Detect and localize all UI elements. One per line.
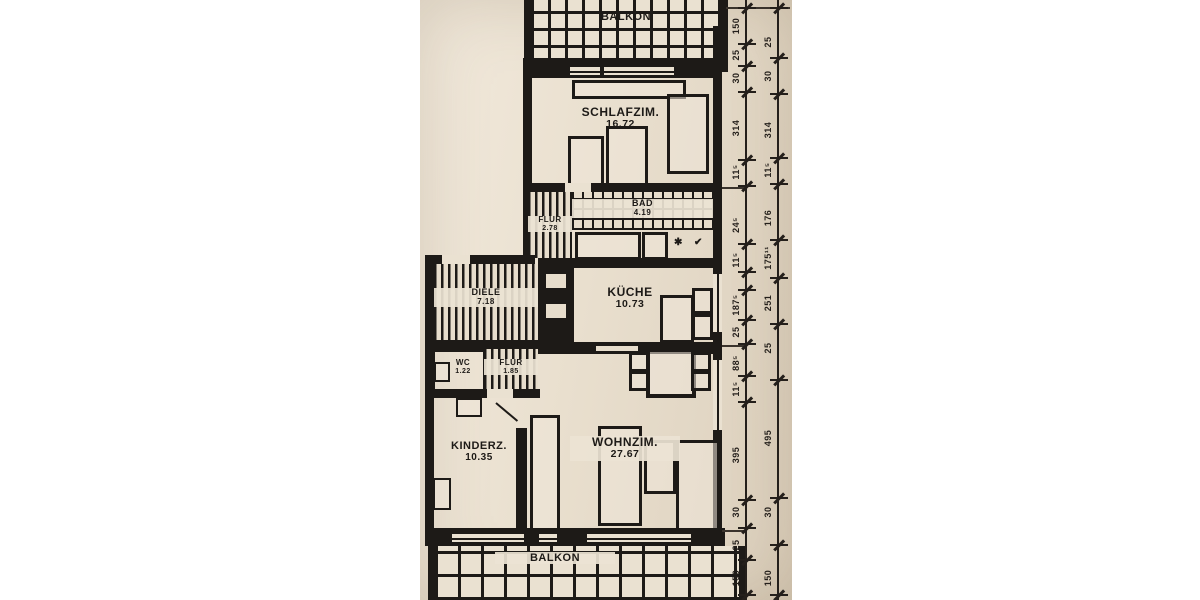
window-kinderzimmer <box>450 534 526 542</box>
door-opening-schlafzimmer <box>565 183 591 192</box>
diele: DIELE 7.18 <box>434 264 538 340</box>
dimension-value: 30 <box>731 72 741 83</box>
wohnzimmer-wardrobe <box>530 415 560 534</box>
wall-entry <box>425 255 535 264</box>
dimension-value: 24⁵ <box>731 217 741 233</box>
dimension-chain-inner: 150253031411⁵24⁵11⁵187⁵2588⁵11⁵395302515… <box>745 0 747 600</box>
kueche-appliance-2 <box>692 314 713 340</box>
dimension-value: 395 <box>731 447 741 464</box>
window-schlafzimmer-left <box>568 67 602 75</box>
dimension-value: 30 <box>763 506 773 517</box>
dimension-value: 11⁵ <box>731 164 741 179</box>
dimension-value: 251 <box>763 295 773 312</box>
door-swing-wohnzimmer <box>495 402 518 422</box>
dimension-value: 25 <box>731 326 741 337</box>
balcony-door-bottom <box>537 534 559 542</box>
flur-upper: FLUR 2.78 <box>528 192 572 258</box>
kinderzimmer-closet <box>456 398 482 417</box>
room-label-bad: BAD 4.19 <box>572 199 713 218</box>
bad-vanity <box>575 232 641 260</box>
shaft-slot-1 <box>546 274 566 288</box>
wall-top <box>523 58 722 78</box>
bad-room: BAD 4.19 <box>572 192 713 230</box>
floorplan-photo: BALKON SCHLAFZIM. 16.72 FLUR <box>420 0 792 600</box>
room-label-diele: DIELE 7.18 <box>434 288 538 307</box>
dimension-value: 25 <box>731 539 741 550</box>
chair-3 <box>691 352 711 372</box>
room-label-kinderzimmer: KINDERZ. 10.35 <box>434 440 524 463</box>
dimension-value: 150 <box>763 570 773 587</box>
screenshot-root: BALKON SCHLAFZIM. 16.72 FLUR <box>0 0 1200 600</box>
dimension-value: 176 <box>763 210 773 227</box>
schlafzimmer-wardrobe <box>667 94 709 174</box>
window-wohnzimmer <box>713 358 722 432</box>
entry-door-opening <box>442 255 470 264</box>
wall-kinderzimmer-wohnzimmer <box>516 428 527 528</box>
room-label-flur-lower: FLUR 1.85 <box>484 359 538 375</box>
window-kueche <box>713 272 722 334</box>
dimension-value: 314 <box>731 120 741 137</box>
bad-sink-box <box>642 232 668 260</box>
dining-table <box>646 348 696 398</box>
pass-through-slot <box>596 346 638 351</box>
dimension-value: 150 <box>731 570 741 587</box>
room-label-flur-upper: FLUR 2.78 <box>528 216 572 232</box>
dimension-value: 187⁵ <box>731 294 741 315</box>
shaft-slot-2 <box>546 304 566 318</box>
schlafzimmer-bed-2 <box>606 126 648 189</box>
shaft-closet <box>538 258 574 348</box>
dimension-value: 30 <box>731 506 741 517</box>
kueche-appliance-1 <box>692 288 713 314</box>
dimension-value: 11⁵ <box>731 381 741 396</box>
chair-2 <box>629 371 649 391</box>
wall-schlafzimmer-bad <box>523 183 722 192</box>
balcony-bottom-label: BALKON <box>495 552 615 564</box>
dimension-value: 30 <box>763 70 773 81</box>
bad-fixture-star-icon: ✱ <box>674 237 682 248</box>
chair-1 <box>629 352 649 372</box>
kueche-counter <box>660 295 694 343</box>
window-wohnzimmer-bottom <box>585 534 693 542</box>
wall-diele-wc <box>425 340 540 349</box>
wohnzimmer-cabinet-2 <box>676 440 720 534</box>
dimension-value: 11⁵ <box>763 162 773 177</box>
dimension-value: 11⁵ <box>731 252 741 267</box>
window-schlafzimmer-right <box>602 67 676 75</box>
dimension-value: 175¹¹ <box>763 246 773 270</box>
bad-fixture-zone: ✱ ✔ <box>572 230 713 258</box>
room-label-wc: WC 1.22 <box>447 359 479 375</box>
wall-flur-kinderzimmer <box>425 389 540 398</box>
wall-bottom <box>425 528 725 546</box>
dimension-value: 495 <box>763 430 773 447</box>
dimension-value: 25 <box>731 49 741 60</box>
kinderzimmer-side-table <box>433 478 451 510</box>
dimension-value: 150 <box>731 18 741 35</box>
dimension-value: 88⁵ <box>731 355 741 371</box>
door-opening-kinderzimmer <box>487 389 513 398</box>
dimension-value: 25 <box>763 342 773 353</box>
balcony-bottom: BALKON <box>428 546 746 600</box>
dimension-chain-outer: 253031411⁵176175¹¹2512549530150 <box>777 0 779 600</box>
balcony-top-label: BALKON <box>531 11 721 23</box>
bad-fixture-hook-icon: ✔ <box>694 237 702 248</box>
chair-4 <box>691 371 711 391</box>
dimension-value: 314 <box>763 122 773 139</box>
schlafzimmer-bed-1 <box>568 136 604 189</box>
flur-lower: FLUR 1.85 <box>484 349 538 389</box>
room-label-wohnzimmer: WOHNZIM. 27.67 <box>570 436 680 461</box>
dimension-value: 25 <box>763 36 773 47</box>
